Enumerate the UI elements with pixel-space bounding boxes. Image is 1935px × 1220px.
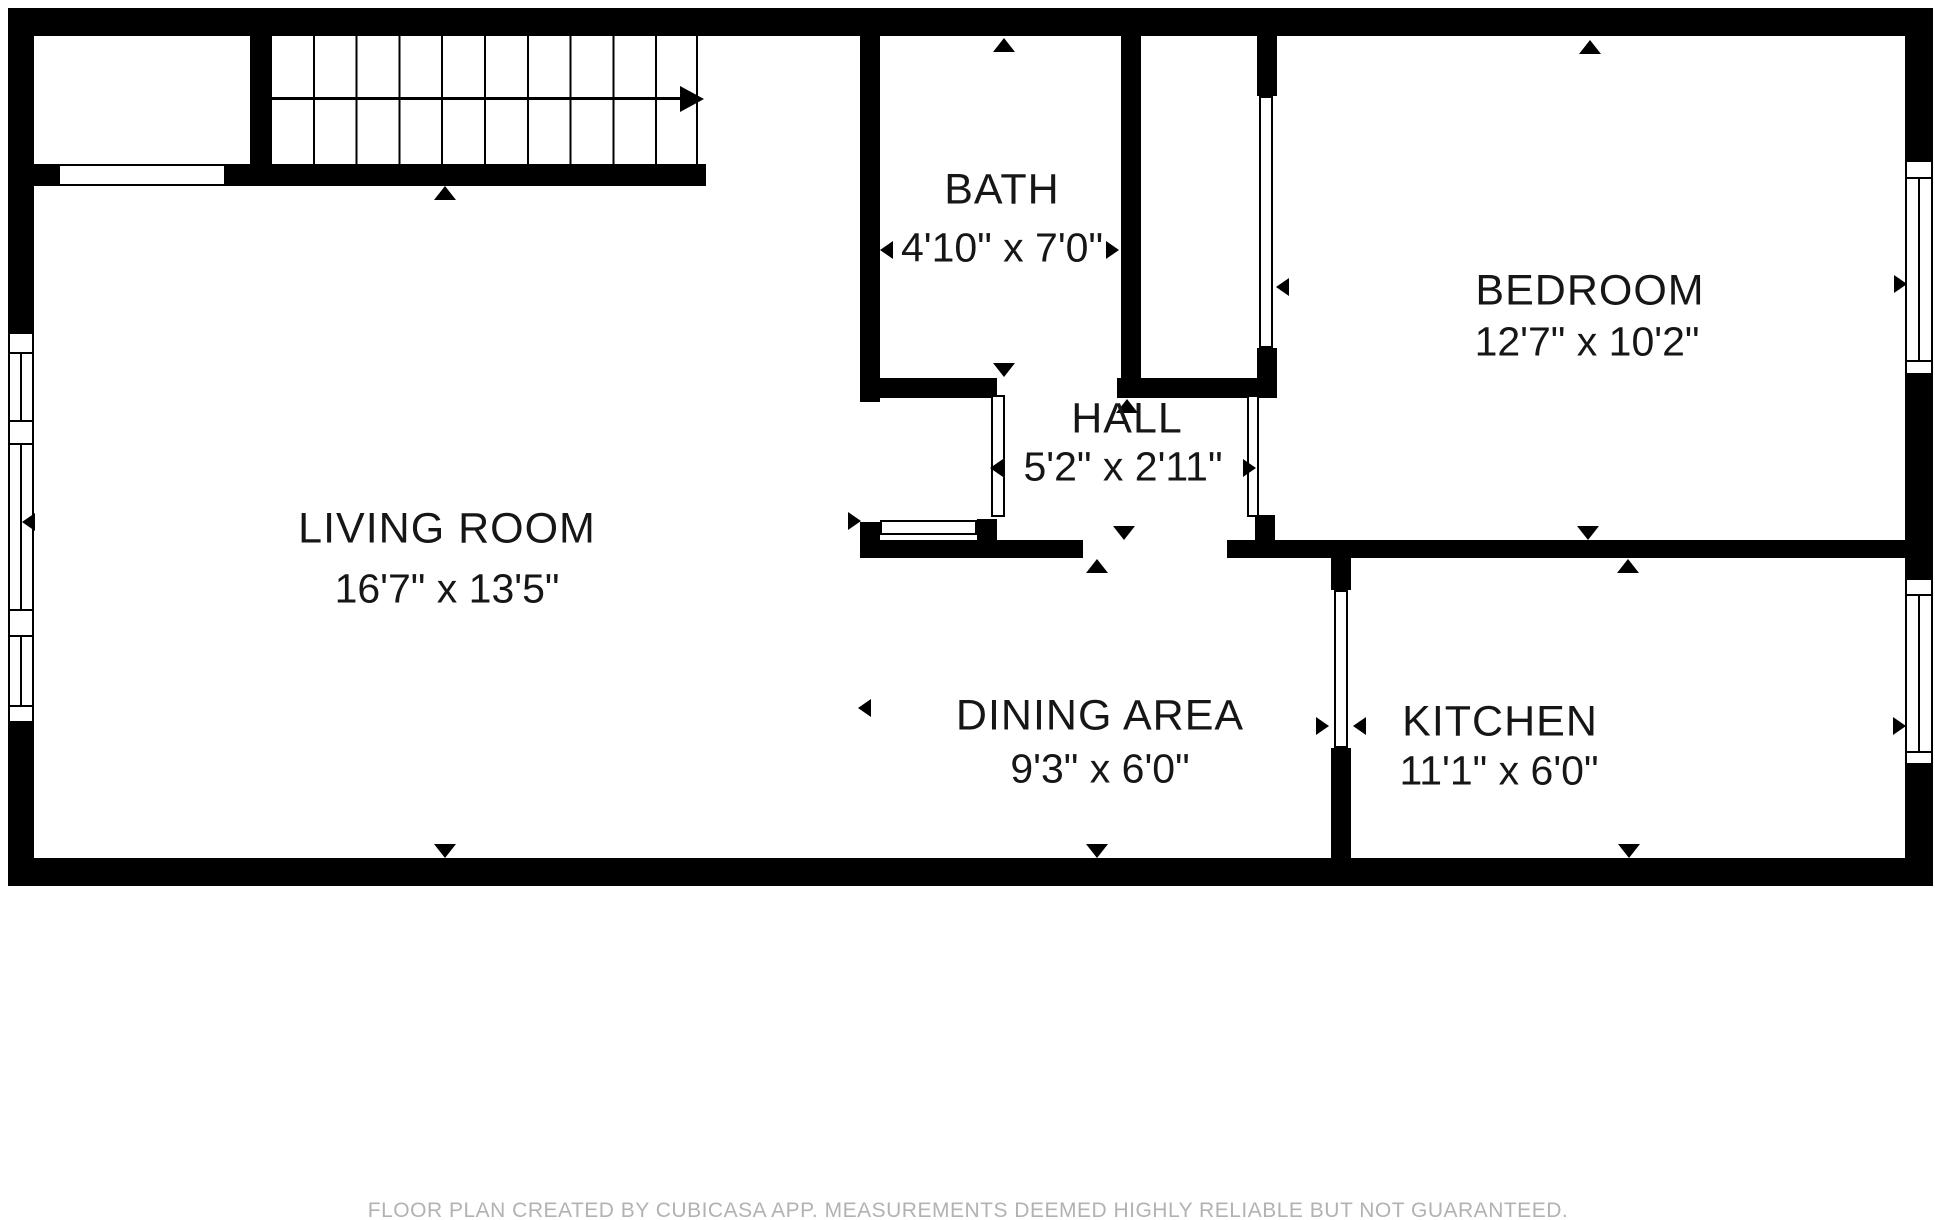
wall-under-stairs bbox=[226, 164, 706, 186]
arrow-right-icon-bath-right bbox=[1106, 241, 1119, 259]
arrow-left-icon-hall-left bbox=[990, 459, 1003, 477]
bedroom-dimensions: 12'7" x 10'2" bbox=[1475, 319, 1700, 366]
living-room-dimensions: 16'7" x 13'5" bbox=[335, 566, 560, 613]
arrow-left-icon-living-left bbox=[22, 513, 35, 531]
wall-hall-dining-left bbox=[860, 540, 1083, 558]
wall-entry-left-stub bbox=[34, 164, 58, 186]
living-door-leaf bbox=[880, 520, 977, 535]
arrow-down-icon-hall-bottom bbox=[1113, 526, 1135, 540]
kitchen-door-leaf bbox=[1334, 590, 1348, 748]
bedroom-window bbox=[1905, 160, 1933, 375]
closet-door-leaf bbox=[1259, 96, 1273, 348]
kitchen-label: KITCHEN bbox=[1402, 698, 1598, 747]
kitchen-window bbox=[1905, 578, 1933, 765]
wall-bedroom-kitchen bbox=[1227, 540, 1905, 558]
wall-outer-left-lower bbox=[8, 723, 34, 886]
arrow-down-icon-kitchen-bottom bbox=[1618, 844, 1640, 858]
wall-hall-right-stub bbox=[1255, 515, 1275, 540]
arrow-left-icon-kitchen-left bbox=[1353, 717, 1366, 735]
bedroom-door-leaf bbox=[1247, 395, 1259, 517]
dining-area-label: DINING AREA bbox=[956, 692, 1244, 741]
arrow-down-icon-bath-bottom bbox=[993, 363, 1015, 377]
wall-bath-closet bbox=[1121, 36, 1141, 378]
kitchen-dimensions: 11'1" x 6'0" bbox=[1399, 748, 1598, 795]
arrow-up-icon-dining-top bbox=[1086, 559, 1108, 573]
arrow-right-icon-dining-right bbox=[1316, 717, 1329, 735]
arrow-right-icon-bedroom-right bbox=[1894, 275, 1907, 293]
entry-door bbox=[58, 164, 226, 186]
wall-dining-kitchen bbox=[1331, 748, 1351, 858]
wall-outer-right-upper bbox=[1905, 8, 1933, 160]
wall-closet-bedroom-lower bbox=[1257, 348, 1277, 378]
wall-outer-left-upper bbox=[8, 8, 34, 332]
arrow-right-icon-living-door bbox=[848, 512, 861, 530]
staircase-treads bbox=[270, 36, 698, 164]
wall-nook-stub bbox=[977, 519, 997, 540]
floor-plan: LIVING ROOM 16'7" x 13'5" BATH 4'10" x 7… bbox=[0, 0, 1935, 1220]
arrow-up-icon-living-top bbox=[434, 186, 456, 200]
wall-outer-right-middle bbox=[1905, 375, 1933, 578]
arrow-left-icon-bath-left bbox=[880, 241, 893, 259]
bath-dimensions: 4'10" x 7'0" bbox=[901, 225, 1103, 272]
arrow-right-icon-kitchen-right bbox=[1893, 717, 1906, 735]
arrow-up-icon-bath-top bbox=[993, 38, 1015, 52]
wall-outer-top bbox=[8, 8, 1933, 36]
wall-living-bath-upper bbox=[860, 36, 880, 402]
arrow-down-icon-bedroom-bottom bbox=[1577, 526, 1599, 540]
footer-disclaimer: FLOOR PLAN CREATED BY CUBICASA APP. MEAS… bbox=[368, 1199, 1568, 1220]
arrow-right-icon-hall-right bbox=[1243, 459, 1256, 477]
bath-door-leaf bbox=[991, 395, 1005, 517]
arrow-left-icon-bedroom-closet-door bbox=[1276, 278, 1289, 296]
wall-outer-right-lower bbox=[1905, 765, 1933, 886]
dining-area-dimensions: 9'3" x 6'0" bbox=[1010, 746, 1189, 793]
arrow-up-icon-bedroom-top bbox=[1579, 40, 1601, 54]
bedroom-label: BEDROOM bbox=[1475, 267, 1704, 316]
stairs-direction-arrow-icon bbox=[680, 86, 704, 112]
bath-label: BATH bbox=[944, 166, 1060, 215]
wall-outer-bottom bbox=[8, 858, 1933, 886]
living-room-label: LIVING ROOM bbox=[298, 505, 596, 554]
wall-dining-kitchen-stub bbox=[1331, 558, 1351, 590]
stairs-direction-line bbox=[272, 97, 682, 100]
arrow-left-icon-dining-left bbox=[858, 699, 871, 717]
wall-closet-bedroom-upper bbox=[1257, 36, 1277, 96]
hall-label: HALL bbox=[1071, 395, 1183, 444]
hall-dimensions: 5'2" x 2'11" bbox=[1023, 444, 1222, 491]
arrow-down-icon-living-bottom bbox=[434, 844, 456, 858]
arrow-down-icon-dining-bottom bbox=[1086, 844, 1108, 858]
arrow-up-icon-kitchen-top bbox=[1617, 559, 1639, 573]
wall-below-bath-left bbox=[860, 378, 997, 398]
